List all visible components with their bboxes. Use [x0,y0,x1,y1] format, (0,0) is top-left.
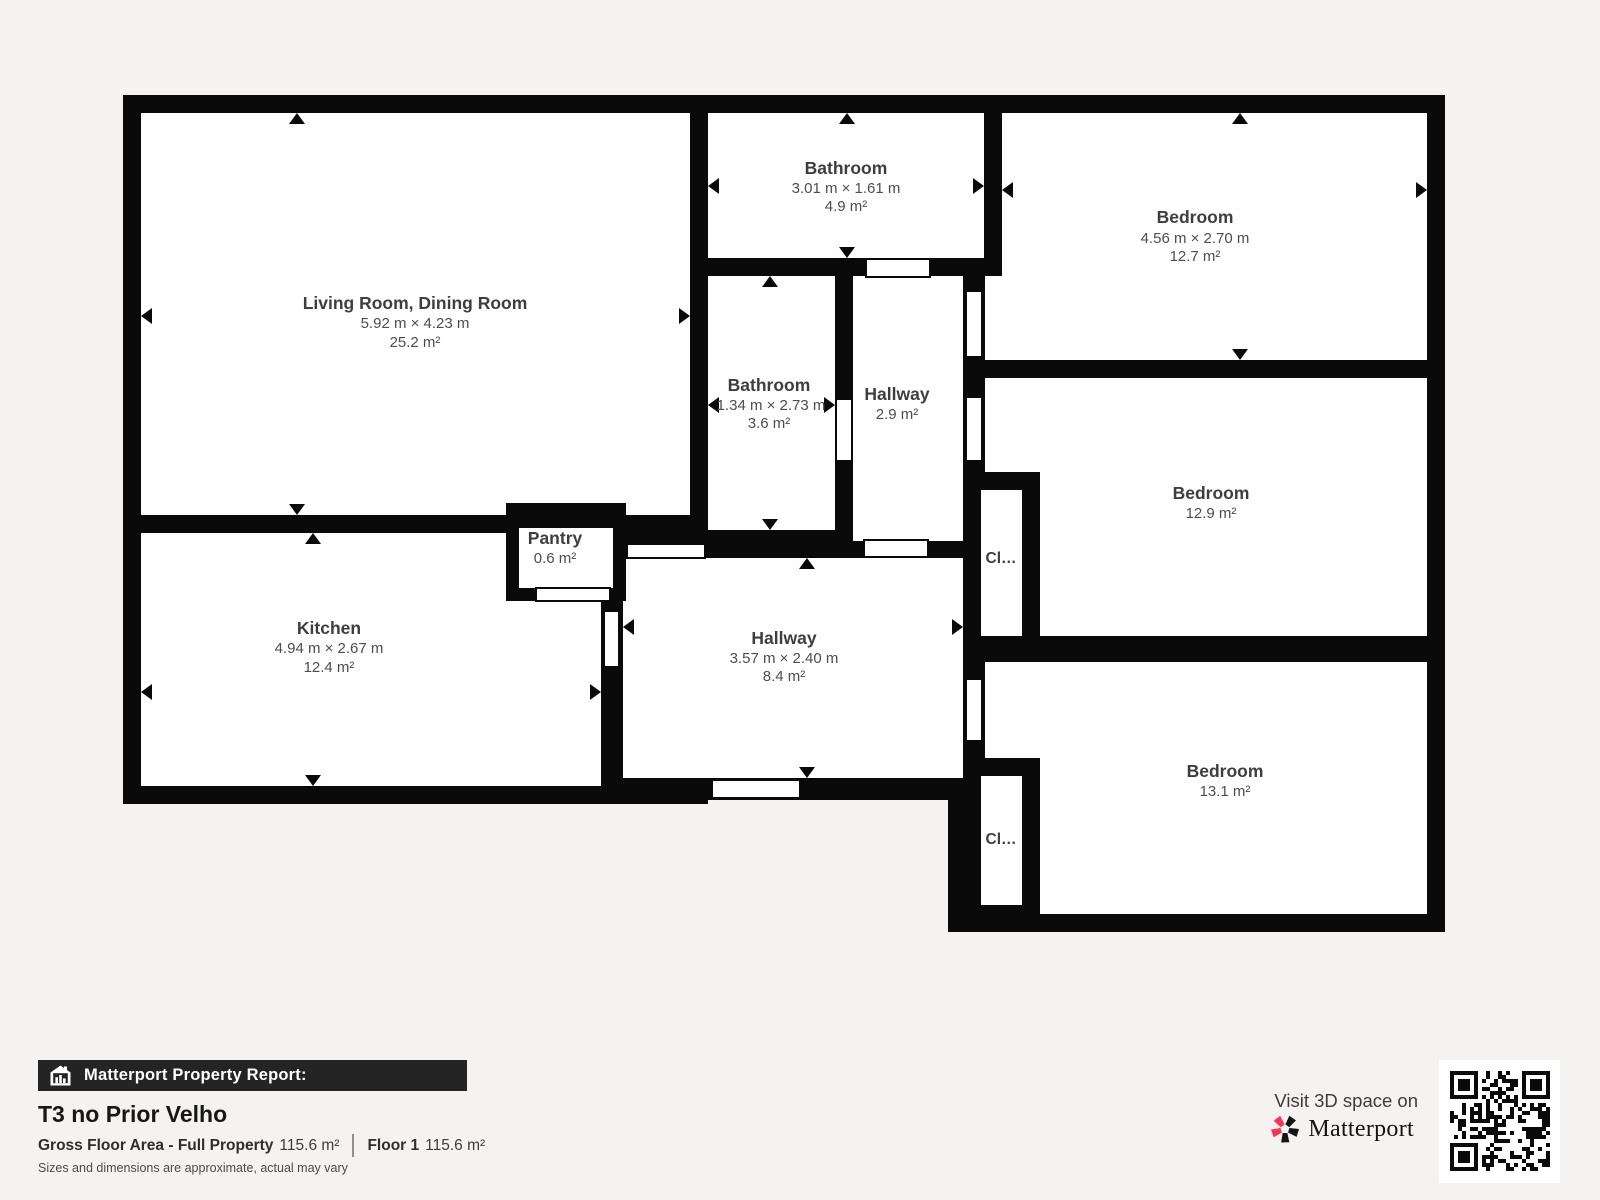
label-bathroom-top-dims: 3.01 m × 1.61 m [792,180,901,197]
label-living-name: Living Room, Dining Room [303,293,528,313]
label-bedroom-tr-dims: 4.56 m × 2.70 m [1141,230,1250,247]
qr-code [1439,1060,1560,1183]
label-closet-2: Cl… [986,831,1017,848]
label-kitchen-dims: 4.94 m × 2.67 m [275,640,384,657]
gfa-value: 115.6 m² [279,1137,339,1155]
label-bedroom-tr-area: 12.7 m² [1170,248,1221,265]
label-closet-1: Cl… [986,550,1017,567]
door-hallway-small [864,540,928,557]
label-bedroom-mr-area: 12.9 m² [1186,505,1237,522]
label-bedroom-br-name: Bedroom [1187,761,1264,781]
door-pantry [536,588,610,601]
room-living-dining [141,113,690,515]
matterport-pinwheel-icon [1270,1114,1300,1144]
floor-value: 115.6 m² [425,1137,485,1155]
label-bathroom-mid-area: 3.6 m² [748,415,791,432]
door-entry [712,780,800,798]
floor-label: Floor 1 [367,1137,419,1155]
matterport-wordmark: Matterport [1308,1116,1414,1143]
label-bathroom-mid-name: Bathroom [728,375,811,395]
disclaimer-text: Sizes and dimensions are approximate, ac… [38,1161,348,1175]
area-stats: Gross Floor Area - Full Property 115.6 m… [38,1134,485,1157]
label-pantry-name: Pantry [528,528,583,548]
label-hallway-main-dims: 3.57 m × 2.40 m [730,650,839,667]
label-hallway-small-name: Hallway [864,384,929,404]
door-bedroom-top-right [966,291,982,357]
stats-divider [352,1134,354,1157]
label-bedroom-mr-name: Bedroom [1173,483,1250,503]
label-living-dims: 5.92 m × 4.23 m [361,315,470,332]
label-bedroom-br-area: 13.1 m² [1200,783,1251,800]
label-bathroom-top-name: Bathroom [805,158,888,178]
property-title: T3 no Prior Velho [38,1101,227,1128]
door-bedroom-mid-right [966,397,982,461]
visit-3d-text: Visit 3D space on [1274,1090,1418,1112]
report-bar: Matterport Property Report: [38,1060,467,1091]
door-bedroom-bottom-right [966,679,982,741]
label-bathroom-top-area: 4.9 m² [825,198,868,215]
label-kitchen-area: 12.4 m² [304,659,355,676]
house-icon [50,1065,71,1086]
report-bar-label: Matterport Property Report: [84,1066,307,1085]
door-bathroom-top [866,259,930,277]
label-bathroom-mid-dims: 1.34 m × 2.73 m [717,397,826,414]
opening-pantry-hallway [627,544,705,558]
label-hallway-small-area: 2.9 m² [876,406,919,423]
label-pantry-area: 0.6 m² [534,550,577,567]
matterport-logo: Matterport [1270,1114,1414,1144]
label-hallway-main-name: Hallway [751,628,816,648]
door-bathroom-mid [836,399,852,461]
label-hallway-main-area: 8.4 m² [763,668,806,685]
gfa-label: Gross Floor Area - Full Property [38,1137,273,1155]
floor-plan: Living Room, Dining Room 5.92 m × 4.23 m… [0,0,1600,1200]
label-living-area: 25.2 m² [390,334,441,351]
label-kitchen-name: Kitchen [297,618,361,638]
door-kitchen [604,611,619,667]
label-bedroom-tr-name: Bedroom [1157,207,1234,227]
